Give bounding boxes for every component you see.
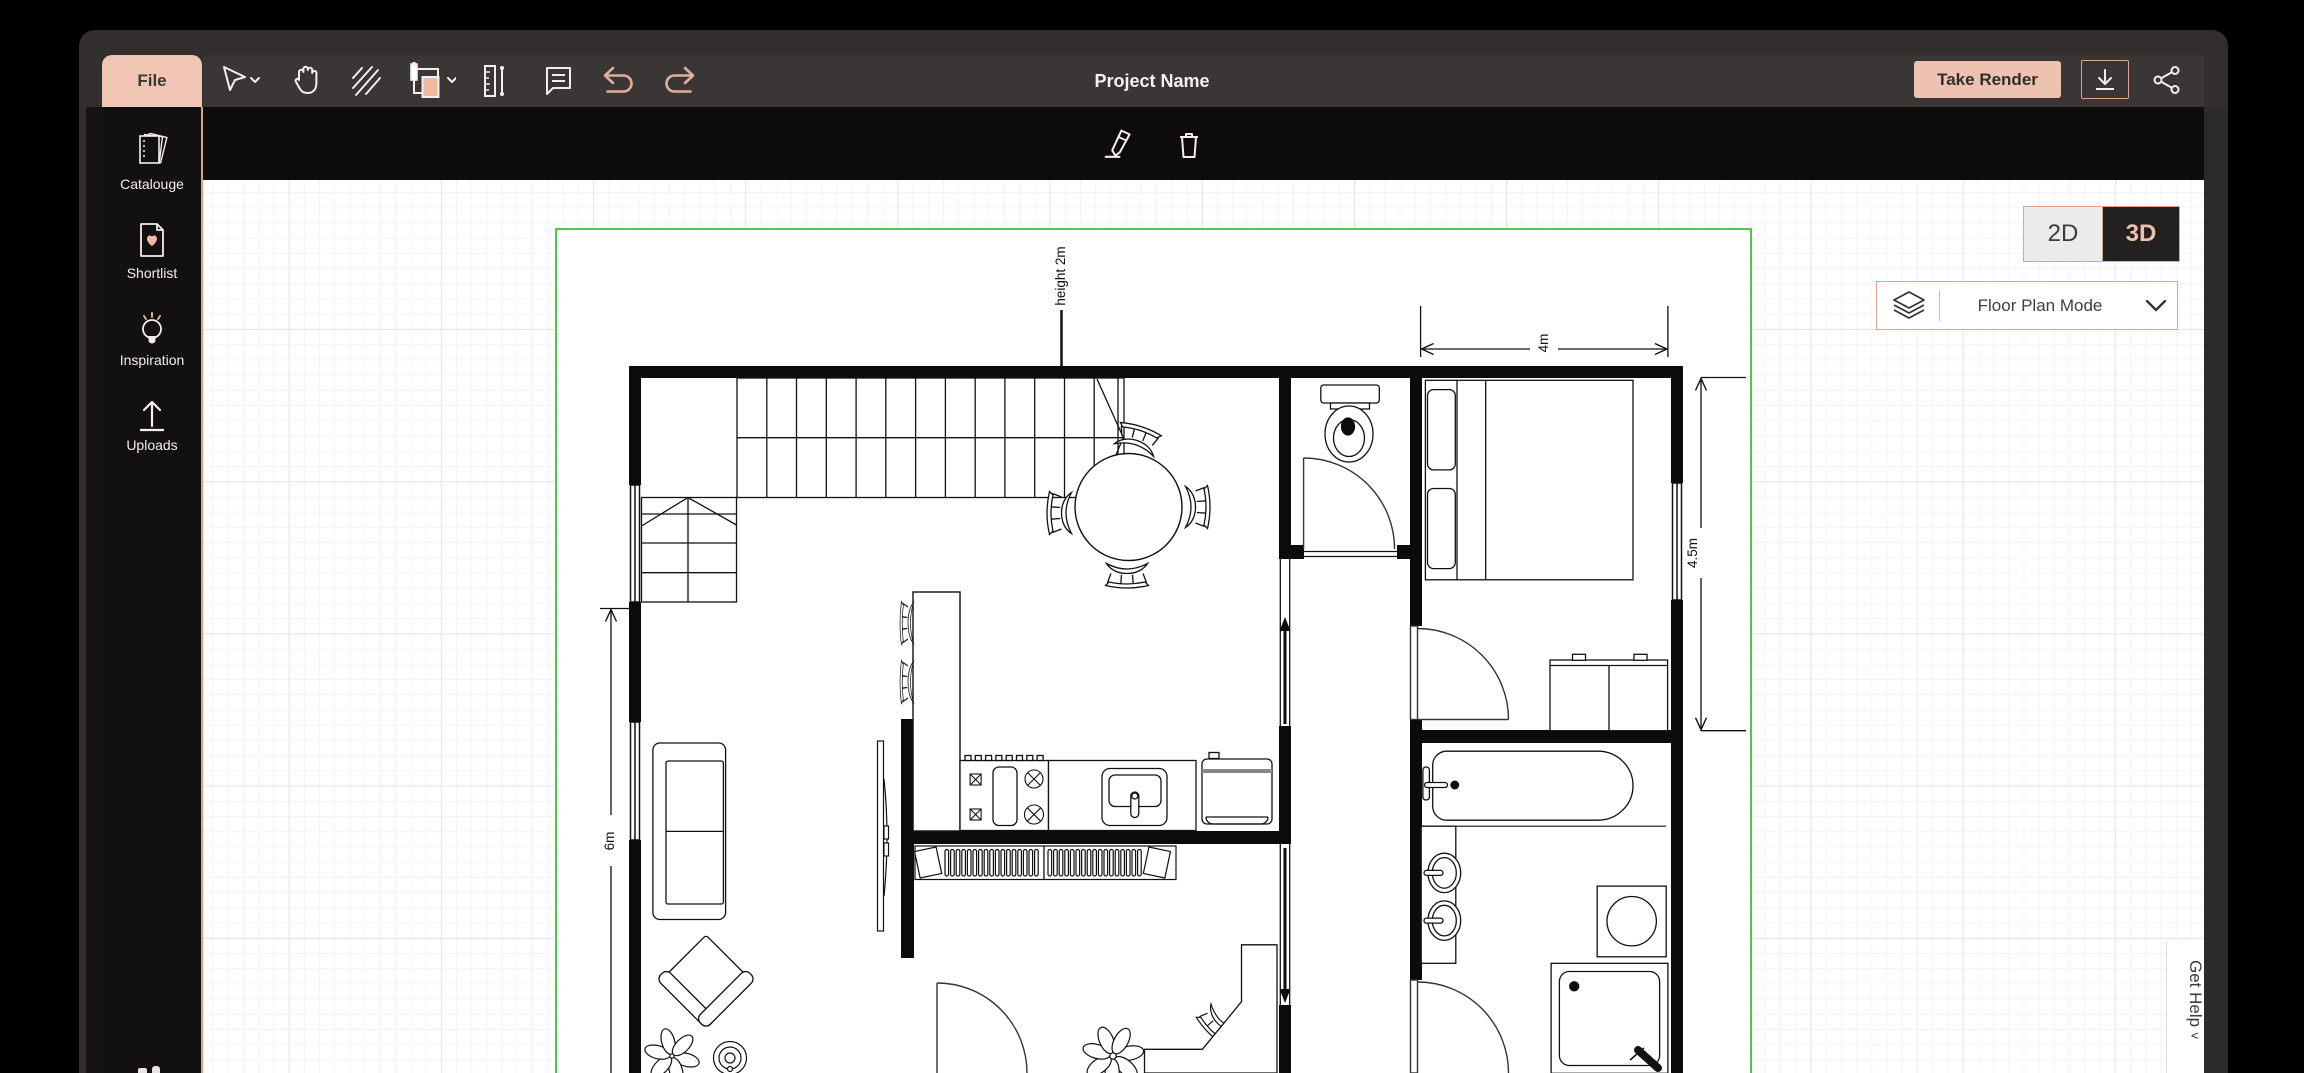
svg-text:4m: 4m <box>1536 334 1551 353</box>
svg-text:6m: 6m <box>602 832 617 851</box>
svg-text:height 2m: height 2m <box>1053 246 1068 305</box>
svg-text:4.5m: 4.5m <box>1685 538 1700 568</box>
